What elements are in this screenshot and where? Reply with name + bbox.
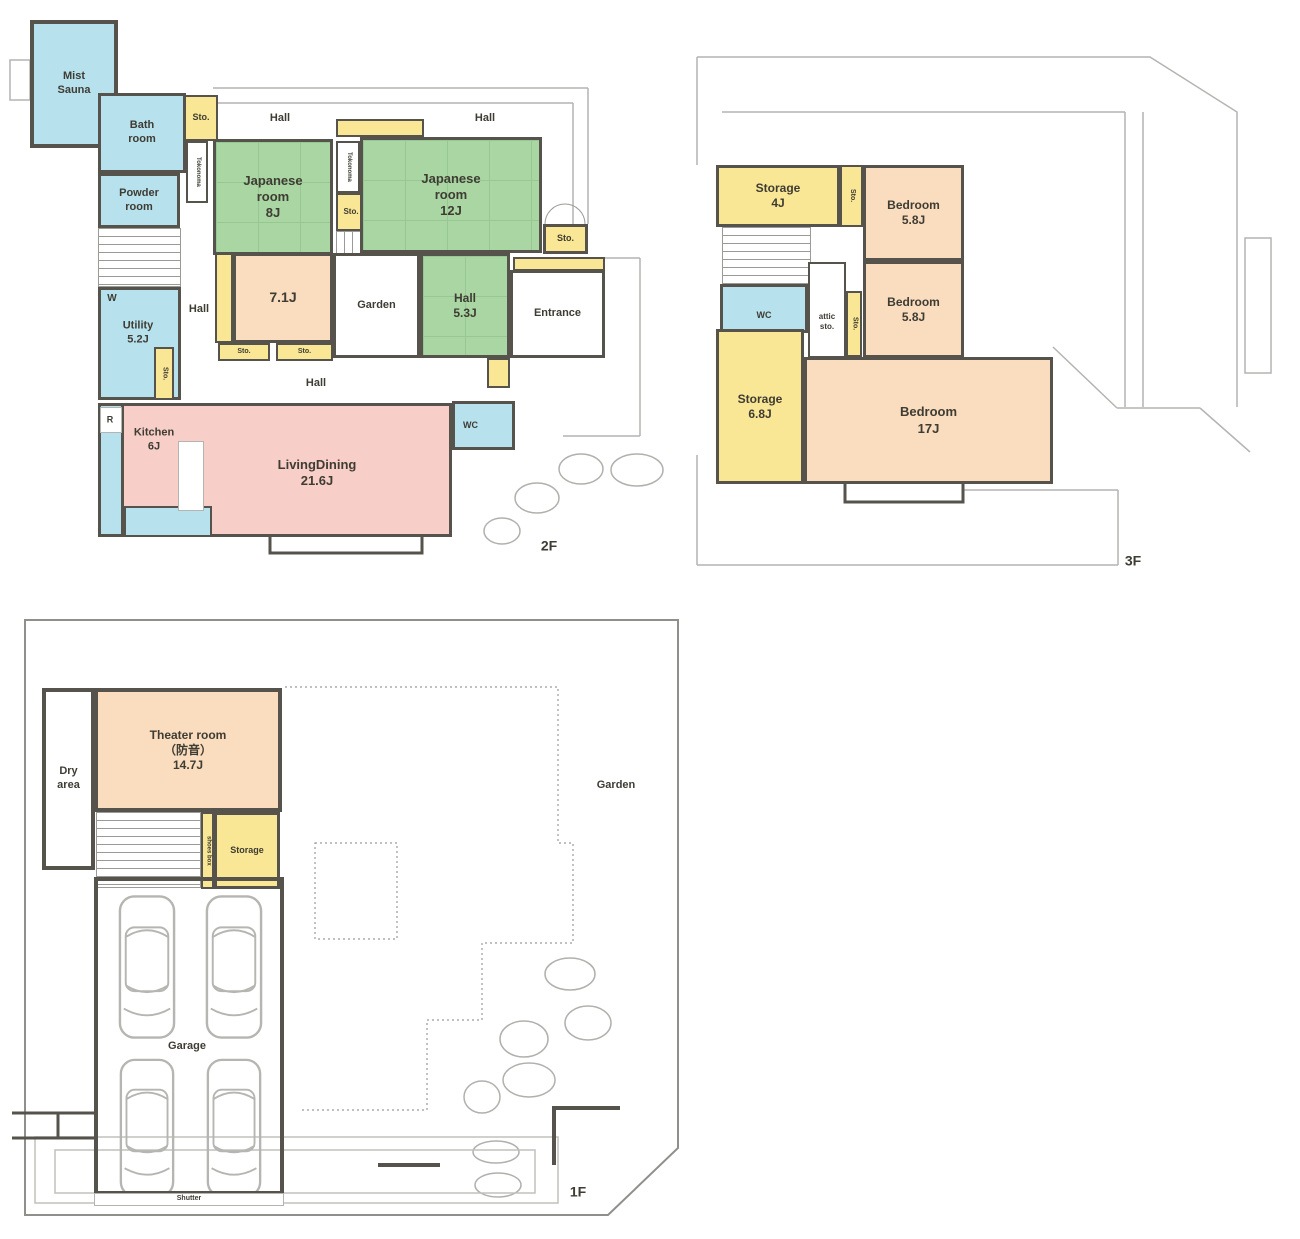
tokonoma-alcove-left: Tokonoma <box>186 141 208 203</box>
room-bedroom-58j-a: Bedroom 5.8J <box>863 165 964 261</box>
sto-label: Sto. <box>298 348 311 357</box>
room-japanese-12j: Japanese room 12J <box>360 137 542 253</box>
room-japanese-8j-label: Japanese room 8J <box>243 173 302 222</box>
room-bedroom-58j-b: Bedroom 5.8J <box>863 261 964 358</box>
room-powder-label: Powder room <box>119 187 159 215</box>
room-kitchen-label: Kitchen 6J <box>134 426 174 454</box>
room-wc-2f: WC <box>452 401 515 450</box>
room-dry-area: Dry area <box>42 688 95 870</box>
f1-stepping-stones <box>464 958 611 1197</box>
room-storage-4j-label: Storage 4J <box>756 181 801 211</box>
garage-shutter-label: Shutter <box>177 1195 202 1204</box>
room-storage-68j-label: Storage 6.8J <box>738 392 783 422</box>
room-hall-53j-label: Hall 5.3J <box>453 291 476 321</box>
room-mist-sauna-label: Mist Sauna <box>57 70 90 98</box>
room-bedroom-58j-b-label: Bedroom 5.8J <box>887 295 940 325</box>
hall-top-left-label: Hall <box>270 112 290 126</box>
room-bedroom-17j: Bedroom 17J <box>804 357 1053 484</box>
room-sto-entry: Sto. <box>543 224 588 254</box>
tokonoma-label: Tokonoma <box>193 157 201 187</box>
room-garage <box>94 877 284 1195</box>
entrance-closet-strip <box>513 257 605 271</box>
room-bath-label: Bath room <box>128 119 156 147</box>
sto-label: Sto. <box>160 367 169 380</box>
floor-plan-canvas: Mist Sauna Bath room Sto. Tokonoma Powde… <box>0 0 1300 1239</box>
sto-label: Sto. <box>193 112 210 123</box>
room-71j: 7.1J <box>233 253 333 343</box>
closet-under-hall53 <box>487 358 510 388</box>
f2-balcony-bump <box>270 537 422 553</box>
floor-label-1f: 1F <box>570 1183 586 1201</box>
kitchen-island <box>178 441 204 511</box>
room-bedroom-17j-label: Bedroom 17J <box>900 404 957 437</box>
room-theater: Theater room （防音） 14.7J <box>94 688 282 812</box>
room-sto-under-71j-b: Sto. <box>276 343 333 361</box>
room-entrance-label: Entrance <box>534 307 581 321</box>
wc-label: WC <box>757 310 772 321</box>
sto-label: Sto. <box>847 189 856 202</box>
sto-strip-3f-mid: Sto. <box>846 291 862 357</box>
washer-label: W <box>107 293 116 306</box>
room-theater-label: Theater room （防音） 14.7J <box>150 728 227 773</box>
room-utility-label: Utility 5.2J <box>123 319 154 347</box>
room-garage-label: Garage <box>168 1040 206 1054</box>
refrigerator-label: R <box>107 414 114 425</box>
room-hall-53j: Hall 5.3J <box>420 253 510 358</box>
attic-storage-closet <box>808 262 846 358</box>
floor-label-3f: 3F <box>1125 552 1141 570</box>
room-71j-label: 7.1J <box>269 289 296 307</box>
attic-storage-label: attic sto. <box>819 312 835 332</box>
tokonoma-alcove-mid: Tokonoma <box>336 141 360 193</box>
hall-left-label: Hall <box>189 303 209 317</box>
room-storage-4j: Storage 4J <box>716 165 840 227</box>
room-powder: Powder room <box>98 173 180 228</box>
utility-sto-strip: Sto. <box>154 347 174 400</box>
sto-strip-3f-top: Sto. <box>840 165 863 227</box>
sto-label: Sto. <box>557 233 574 244</box>
f2-stepping-stones <box>484 454 663 544</box>
room-sto-under-71j-a: Sto. <box>218 343 270 361</box>
sto-label: Sto. <box>343 207 358 217</box>
room-dry-area-label: Dry area <box>57 765 80 793</box>
room-sto-bath: Sto. <box>184 95 218 141</box>
courtyard-garden-2f: Garden <box>333 253 420 358</box>
room-storage-68j: Storage 6.8J <box>716 329 804 484</box>
room-bedroom-58j-a-label: Bedroom 5.8J <box>887 198 940 228</box>
floor-label-2f: 2F <box>541 537 557 555</box>
hall-bottom-label: Hall <box>306 377 326 391</box>
garage-shutter: Shutter <box>94 1193 284 1206</box>
shoes-box-label: shoes box <box>204 836 212 866</box>
room-entrance: Entrance <box>510 270 605 358</box>
garden-1f-label: Garden <box>597 779 636 793</box>
room-wc-3f: WC <box>720 284 808 333</box>
f3-balcony-bump <box>845 484 963 502</box>
wc-label: WC <box>463 420 478 431</box>
stairs-2f <box>98 228 181 287</box>
room-living-dining-label: LivingDining 21.6J <box>278 457 357 490</box>
room-storage-1f-label: Storage <box>230 845 264 856</box>
closet-strip-top <box>336 119 424 137</box>
stairs-3f <box>722 227 811 284</box>
room-japanese-8j: Japanese room 8J <box>213 139 333 255</box>
room-japanese-12j-label: Japanese room 12J <box>421 171 480 220</box>
tokonoma-label: Tokonoma <box>344 152 352 182</box>
room-71j-closet-strip <box>215 253 233 343</box>
sto-label: Sto. <box>237 348 250 357</box>
hall-top-right-label: Hall <box>475 112 495 126</box>
room-bath: Bath room <box>98 93 186 173</box>
f2-door-arcs <box>545 204 585 224</box>
sto-label: Sto. <box>850 317 859 330</box>
garden-2f-label: Garden <box>357 299 396 313</box>
